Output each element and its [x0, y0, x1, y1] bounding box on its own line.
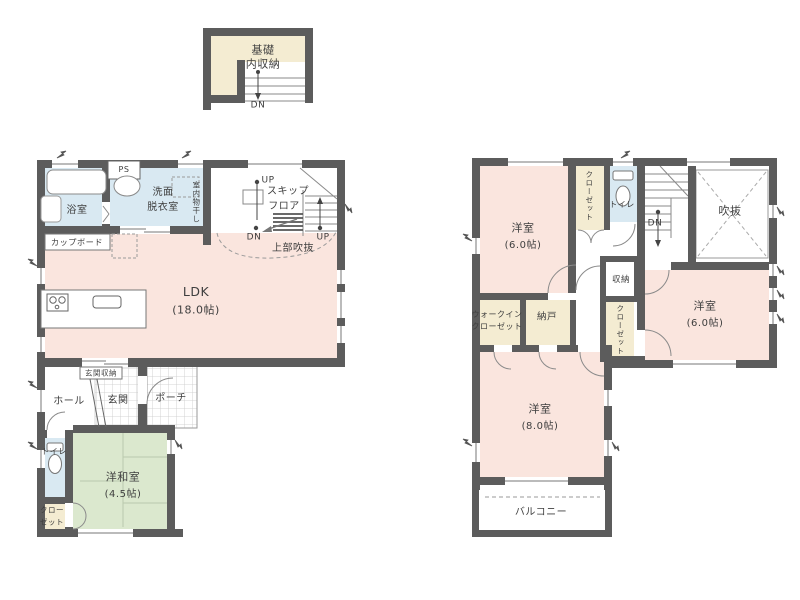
bath-counter [41, 196, 61, 222]
room-label-bedroom-s: 洋室 [529, 404, 552, 415]
room-size-bedroom-s: (8.0帖) [522, 422, 559, 432]
label-skip-floor-line1: スキップ [267, 187, 309, 197]
label-wic-line1: ウォークイン [472, 311, 523, 319]
room-label-toilet2: トイレ [609, 201, 635, 209]
label-upper-void: 上部吹抜 [272, 244, 314, 254]
room-label-entrance: 玄関 [108, 396, 129, 406]
label-dn-f1: DN [247, 234, 262, 243]
room-label-void: 吹抜 [719, 206, 742, 217]
room-label-washitsu: 洋和室 [106, 472, 141, 483]
floorplan-drawing [0, 0, 800, 600]
bedroom-e-floor [645, 270, 769, 360]
room-size-bedroom-nw: (6.0帖) [505, 241, 542, 251]
bathtub [47, 170, 106, 194]
room-size-ldk: (18.0帖) [172, 305, 220, 316]
label-storage: 収納 [612, 276, 630, 285]
room-label-toilet1: トイレ [41, 448, 67, 456]
label-up-right: UP [316, 234, 329, 243]
room-size-bedroom-e: (6.0帖) [687, 319, 724, 329]
room-label-hall: ホール [53, 397, 85, 407]
label-wic-line2: クローゼット [472, 323, 523, 331]
label-up-left: UP [261, 177, 274, 186]
floorplan-canvas: 基礎 内収納 DN 浴室 PS 洗面 脱衣室 室内物干し スキップ フロア UP… [0, 0, 800, 600]
room-label-balcony: バルコニー [515, 508, 567, 518]
room-label-washroom-line2: 脱衣室 [147, 203, 179, 213]
label-closet-nw: クローゼット [585, 171, 593, 222]
room-label-bedroom-nw: 洋室 [512, 223, 535, 234]
washbasin-icon [114, 176, 140, 196]
room-label-bath: 浴室 [67, 206, 88, 216]
room-label-porch: ポーチ [155, 394, 187, 404]
label-dn-f2: DN [648, 220, 663, 229]
label-closet1-line2: ゼット [40, 518, 64, 526]
room-label-washroom-line1: 洗面 [153, 188, 174, 198]
label-cupboard: カップボード [51, 238, 103, 246]
label-entrance-storage: 玄関収納 [85, 369, 117, 377]
label-skip-floor-line2: フロア [268, 202, 300, 212]
basement-dn-label: DN [251, 102, 266, 111]
label-pipe-space: PS [119, 166, 130, 174]
room-size-washitsu: (4.5帖) [105, 490, 142, 500]
basement-label-line1: 基礎 [252, 45, 275, 56]
label-nando: 納戸 [537, 312, 557, 322]
room-label-bedroom-e: 洋室 [694, 301, 717, 312]
room-label-ldk: LDK [183, 286, 209, 299]
floor1-plan [37, 160, 345, 537]
basement-label-line2: 内収納 [246, 59, 281, 70]
label-closet1-line1: クロー [40, 506, 64, 514]
stair-landing [243, 190, 263, 204]
sink-icon [93, 296, 121, 308]
kitchen-counter [41, 290, 146, 328]
nando-floor [526, 300, 570, 345]
label-closet-e: クローゼット [616, 305, 624, 356]
label-indoor-drying: 室内物干し [192, 181, 200, 224]
